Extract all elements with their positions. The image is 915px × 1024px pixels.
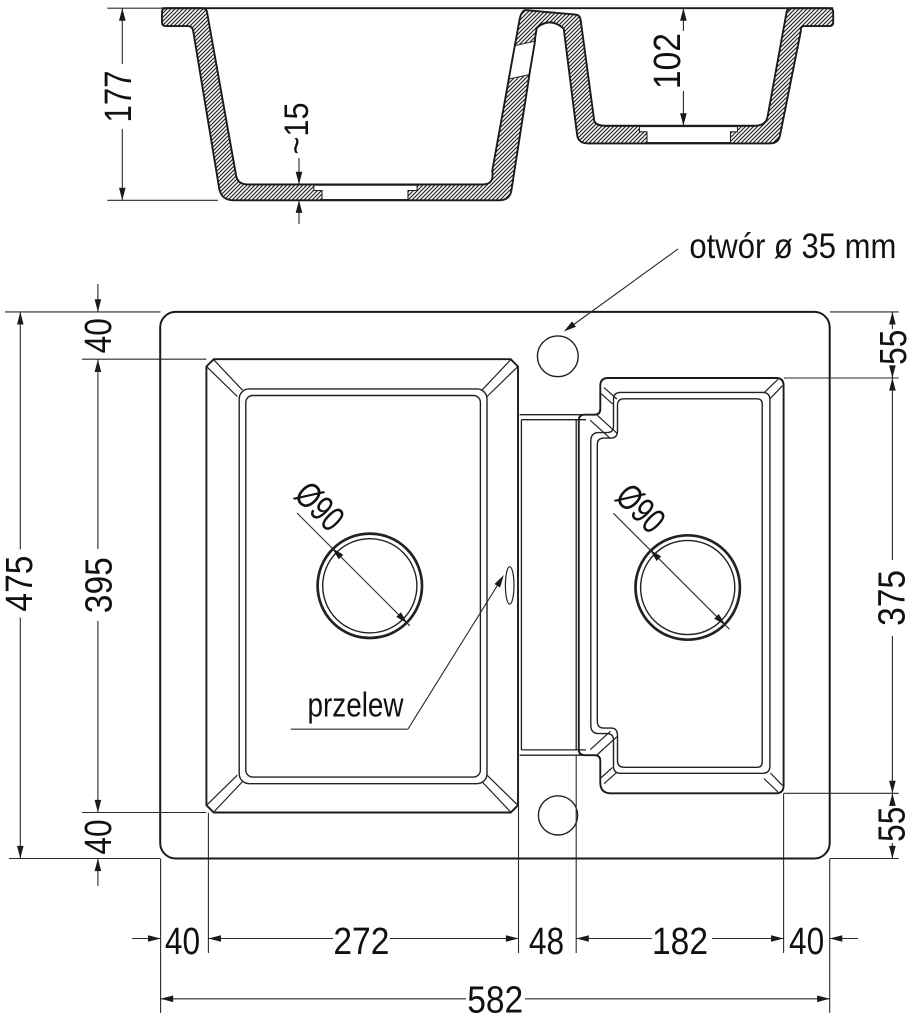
svg-text:582: 582	[467, 980, 523, 1022]
svg-text:40: 40	[789, 921, 824, 963]
svg-text:272: 272	[333, 921, 389, 963]
svg-text:55: 55	[872, 807, 914, 842]
svg-text:102: 102	[647, 33, 689, 89]
svg-text:przelew: przelew	[308, 686, 404, 724]
svg-text:40: 40	[78, 819, 120, 854]
svg-text:~15: ~15	[278, 103, 316, 155]
svg-text:40: 40	[78, 318, 120, 353]
svg-text:40: 40	[165, 921, 200, 963]
svg-text:otwór ø 35 mm: otwór ø 35 mm	[689, 227, 896, 266]
svg-text:177: 177	[98, 71, 140, 123]
svg-text:375: 375	[872, 570, 914, 626]
svg-text:55: 55	[873, 330, 915, 365]
svg-text:182: 182	[652, 921, 708, 963]
svg-text:48: 48	[529, 921, 564, 963]
svg-text:395: 395	[79, 557, 121, 613]
svg-text:475: 475	[0, 556, 41, 612]
